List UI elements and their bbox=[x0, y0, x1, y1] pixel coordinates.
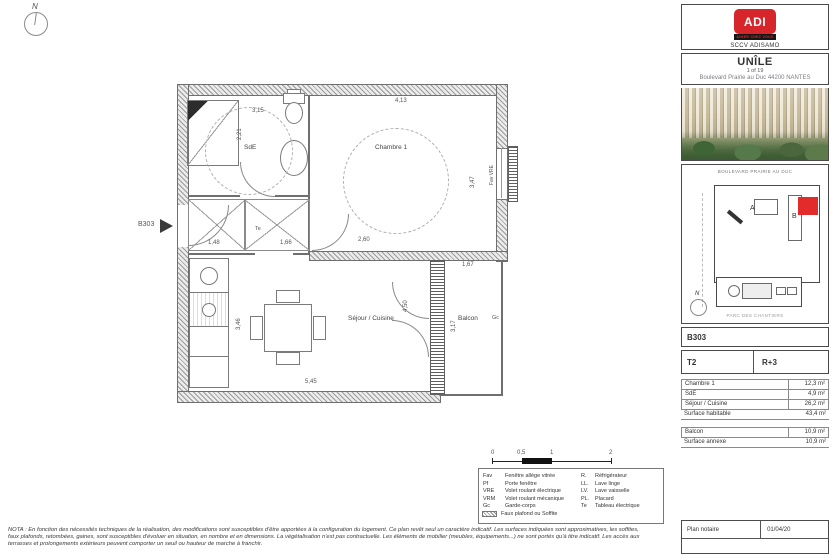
closet-2 bbox=[244, 199, 310, 251]
kitchen-sink-bowl bbox=[200, 267, 218, 285]
street-top-label: BOULEVARD PRAIRIE AU DUC bbox=[682, 169, 828, 174]
area-row: Séjour / Cuisine26,2 m² bbox=[682, 400, 828, 409]
legend-label: Porte fenêtre bbox=[505, 481, 537, 489]
legend-left-column: FavFenêtre allège vitrée PfPorte fenêtre… bbox=[479, 473, 575, 520]
legend-label: Garde-corps bbox=[505, 503, 536, 511]
site-plan: BOULEVARD PRAIRIE AU DUC A B N PARC DES … bbox=[681, 164, 829, 324]
chair-top bbox=[276, 290, 300, 303]
legend-label: Fenêtre allège vitrée bbox=[505, 473, 555, 481]
gc-tag: Gc bbox=[492, 315, 499, 321]
chambre-door-arc bbox=[312, 214, 349, 251]
project-address: Boulevard Prairie au Duc 44200 NANTES bbox=[682, 75, 828, 81]
entry-arrow-icon bbox=[160, 219, 173, 233]
area-label: Balcon bbox=[682, 428, 788, 437]
dim-chambre-h: 3,47 bbox=[470, 176, 476, 188]
partition-hall-sejour-2 bbox=[293, 253, 310, 255]
legend-abbr: PL. bbox=[577, 496, 595, 504]
wall-top bbox=[178, 85, 507, 95]
south-block-cell-1 bbox=[776, 287, 786, 295]
bedroom-shutter-box bbox=[508, 146, 518, 202]
area-label: Chambre 1 bbox=[682, 380, 788, 389]
hob-burner bbox=[202, 303, 216, 317]
kitchen-hob bbox=[189, 292, 229, 328]
legend-item: PfPorte fenêtre bbox=[479, 481, 575, 489]
legend-item: TeTableau électrique bbox=[577, 503, 663, 511]
adi-tagline: AIMER CHEZ VOUS bbox=[734, 34, 776, 40]
dim-chambre-w: 4,13 bbox=[395, 98, 407, 104]
partition-sde bbox=[188, 195, 240, 197]
legend-abbr: Gc bbox=[479, 503, 505, 511]
project-box: UNÎLE 1 of 19 Boulevard Prairie au Duc 4… bbox=[681, 53, 829, 85]
building-photo bbox=[681, 88, 829, 161]
annex-total-row: Surface annexe10,9 m² bbox=[681, 438, 829, 448]
area-row: Balcon10,9 m² bbox=[682, 428, 828, 437]
legend-label: Lave vaisselle bbox=[595, 488, 630, 496]
unit-floor: R+3 bbox=[754, 351, 828, 373]
hatch-swatch-wrap bbox=[479, 511, 501, 521]
legend-item: PL.Placard bbox=[577, 496, 663, 504]
chair-bottom bbox=[276, 352, 300, 365]
legend-label: Tableau électrique bbox=[595, 503, 640, 511]
unit-type: T2 bbox=[682, 351, 754, 373]
area-value: 4,9 m² bbox=[788, 390, 828, 399]
footer-row: Plan notaire 01/04/20 bbox=[682, 521, 828, 539]
scale-end-0 bbox=[492, 458, 493, 464]
area-value: 26,2 m² bbox=[788, 400, 828, 409]
unit-ref-box: B303 bbox=[681, 327, 829, 347]
room-label-balcon: Balcon bbox=[458, 315, 478, 322]
wall-bedroom-balcony bbox=[310, 252, 507, 260]
partition-sde-2 bbox=[275, 195, 308, 197]
annex-total-label: Surface annexe bbox=[681, 438, 790, 447]
north-arrow: N bbox=[20, 2, 50, 42]
siteplan-north-label: N bbox=[695, 291, 699, 297]
unit-ref-label: B303 bbox=[138, 221, 154, 228]
partition-hall-sejour bbox=[188, 253, 255, 255]
areas-table: Chambre 112,3 m² SdE4,9 m² Séjour / Cuis… bbox=[681, 379, 829, 448]
adi-logo: ADI bbox=[734, 9, 776, 34]
photo-vegetation bbox=[682, 131, 828, 160]
dim-hall: 1,66 bbox=[280, 240, 292, 246]
room-label-chambre: Chambre 1 bbox=[375, 144, 407, 151]
scale-bar: 0 0,5 1 2 bbox=[492, 450, 616, 466]
chair-right bbox=[313, 316, 326, 340]
dim-sejour-w: 5,45 bbox=[305, 379, 317, 385]
footer-date: 01/04/20 bbox=[761, 521, 828, 538]
block-b-label: B bbox=[792, 213, 797, 220]
area-label: SdE bbox=[682, 390, 788, 399]
bedroom-window bbox=[497, 148, 507, 200]
scale-end-2 bbox=[611, 458, 612, 464]
legend-item: R.Réfrigérateur bbox=[577, 473, 663, 481]
legend-abbr: R. bbox=[577, 473, 595, 481]
dim-sejour-h: 3,46 bbox=[236, 318, 242, 330]
south-block-core bbox=[742, 283, 772, 299]
legend-item: FavFenêtre allège vitrée bbox=[479, 473, 575, 481]
dim-entry: 1,48 bbox=[208, 240, 220, 246]
footer-box: Plan notaire 01/04/20 bbox=[681, 520, 829, 554]
kitchen-unit-1 bbox=[189, 326, 229, 358]
legend-label: Réfrigérateur bbox=[595, 473, 627, 481]
area-row: SdE4,9 m² bbox=[682, 390, 828, 400]
north-label: N bbox=[32, 2, 38, 11]
legend-item: VREVolet roulant électrique bbox=[479, 488, 575, 496]
dim-balcon-w: 1,67 bbox=[462, 262, 474, 268]
legend-label: Volet roulant électrique bbox=[505, 488, 561, 496]
legend-abbr: VRM bbox=[479, 496, 505, 504]
company-name: SCCV ADISAMO bbox=[682, 43, 828, 49]
sheet-number: 1 of 19 bbox=[682, 68, 828, 74]
total-value: 43,4 m² bbox=[790, 410, 829, 419]
bay-door-arc-1 bbox=[392, 282, 429, 319]
kitchen-unit-2 bbox=[189, 356, 229, 388]
annex-rows: Balcon10,9 m² bbox=[681, 427, 829, 438]
room-label-sejour: Séjour / Cuisine bbox=[348, 315, 394, 322]
street-bottom-label: PARC DES CHANTIERS bbox=[682, 313, 828, 318]
dining-table bbox=[264, 304, 312, 352]
area-value: 12,3 m² bbox=[788, 380, 828, 389]
legend-item: Faux plafond ou Soffite bbox=[479, 511, 575, 521]
legend-label: Placard bbox=[595, 496, 614, 504]
scale-line bbox=[492, 461, 612, 462]
legend-abbr: VRE bbox=[479, 488, 505, 496]
block-a-label: A bbox=[750, 205, 755, 212]
dim-sde-w: 3,15 bbox=[252, 108, 264, 114]
legend-abbr: Fav bbox=[479, 473, 505, 481]
nota-disclaimer: NOTA : En fonction des nécessités techni… bbox=[8, 527, 648, 548]
legend-abbr: Te bbox=[577, 503, 595, 511]
area-row: Chambre 112,3 m² bbox=[682, 380, 828, 390]
logo-box: ADI AIMER CHEZ VOUS SCCV ADISAMO bbox=[681, 4, 829, 50]
dim-sde-h: 2,21 bbox=[237, 128, 243, 140]
south-block-cell-2 bbox=[787, 287, 797, 295]
area-label: Séjour / Cuisine bbox=[682, 400, 788, 409]
title-block-sidebar: ADI AIMER CHEZ VOUS SCCV ADISAMO UNÎLE 1… bbox=[681, 4, 829, 554]
project-name: UNÎLE bbox=[682, 56, 828, 68]
habitable-total-row: Surface habitable43,4 m² bbox=[681, 410, 829, 420]
entry-opening bbox=[178, 205, 188, 247]
room-label-sde: SdE bbox=[244, 144, 256, 151]
legend-label: Lave linge bbox=[595, 481, 620, 489]
bedroom-window-glass bbox=[501, 148, 502, 198]
bay-door-arc-2 bbox=[392, 320, 429, 357]
balcony-railing-bottom bbox=[440, 394, 503, 396]
legend-right-column: R.Réfrigérateur LL.Lave linge LV.Lave va… bbox=[577, 473, 663, 511]
footer-label: Plan notaire bbox=[682, 521, 761, 538]
unit-type-box: T2 R+3 bbox=[681, 350, 829, 374]
legend-item: VRMVolet roulant mécanique bbox=[479, 496, 575, 504]
scale-tick-2: 2 bbox=[609, 450, 612, 456]
dim-chambre-b: 2,60 bbox=[358, 237, 370, 243]
legend-item: LV.Lave vaisselle bbox=[577, 488, 663, 496]
legend-abbr: LV. bbox=[577, 488, 595, 496]
bathroom-cabinet bbox=[287, 89, 301, 94]
legend-label: Faux plafond ou Soffite bbox=[501, 511, 557, 521]
dim-bay: 4,50 bbox=[403, 300, 409, 312]
legend-abbr: Pf bbox=[479, 481, 505, 489]
site-boundary-dashed bbox=[702, 193, 704, 307]
legend-label: Volet roulant mécanique bbox=[505, 496, 564, 504]
unit-location-marker bbox=[798, 197, 818, 215]
total-label: Surface habitable bbox=[681, 410, 790, 419]
kitchen-sink bbox=[189, 258, 229, 294]
legend-item: LL.Lave linge bbox=[577, 481, 663, 489]
block-a-core bbox=[754, 199, 778, 215]
wall-bottom bbox=[178, 392, 440, 402]
dim-balcon-h: 3,17 bbox=[451, 320, 457, 332]
chair-left bbox=[250, 316, 263, 340]
annex-total-value: 10,9 m² bbox=[790, 438, 829, 447]
area-value: 10,9 m² bbox=[788, 428, 828, 437]
wc-bowl bbox=[285, 102, 303, 124]
hatch-swatch-icon bbox=[482, 511, 497, 517]
scale-tick-05: 0,5 bbox=[517, 450, 525, 456]
south-block-circle bbox=[728, 285, 740, 297]
habitable-rows: Chambre 112,3 m² SdE4,9 m² Séjour / Cuis… bbox=[681, 379, 829, 410]
scale-fill bbox=[522, 458, 552, 464]
unit-ref: B303 bbox=[682, 333, 706, 342]
balcony-railing-right bbox=[501, 260, 503, 396]
scale-tick-1: 1 bbox=[550, 450, 553, 456]
legend-item: GcGarde-corps bbox=[479, 503, 575, 511]
window-tag: Fav VRE bbox=[489, 165, 495, 185]
legend-box: FavFenêtre allège vitrée PfPorte fenêtre… bbox=[478, 468, 664, 524]
scale-tick-0: 0 bbox=[491, 450, 494, 456]
balcony-shutter-strip bbox=[430, 260, 445, 395]
legend-abbr: LL. bbox=[577, 481, 595, 489]
